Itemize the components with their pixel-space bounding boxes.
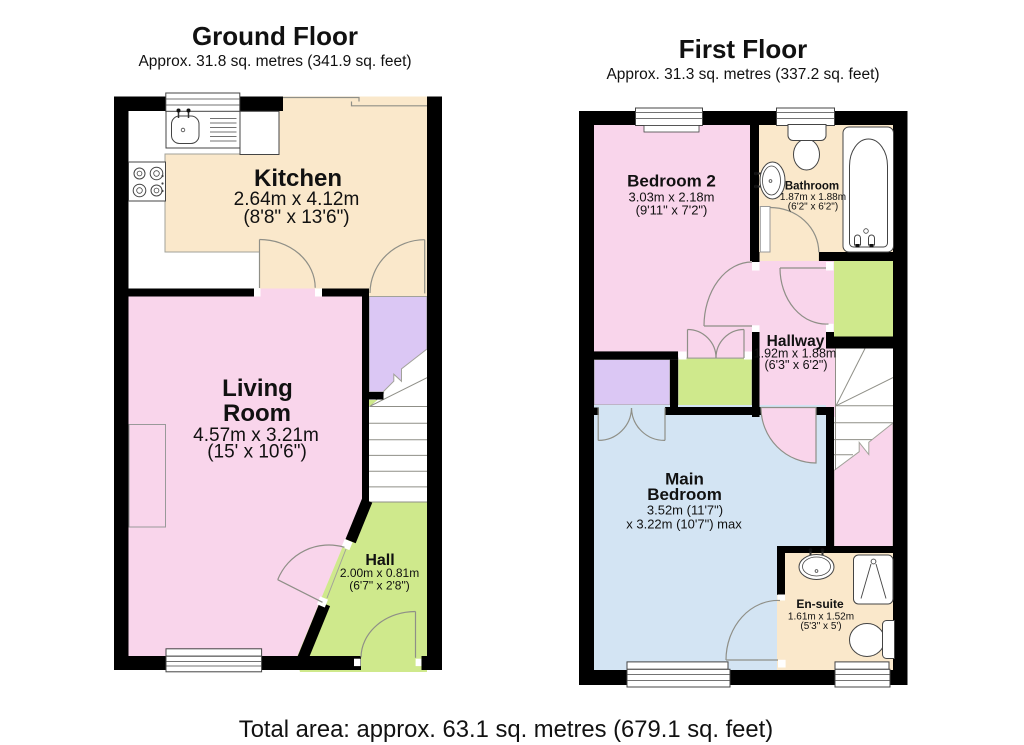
svg-text:(6'2" x 6'2"): (6'2" x 6'2") [788,202,838,213]
svg-text:Room: Room [223,400,291,427]
svg-text:Living: Living [222,375,293,402]
svg-text:Approx. 31.3 sq. metres (337.2: Approx. 31.3 sq. metres (337.2 sq. feet) [606,66,879,83]
svg-text:(9'11" x 7'2"): (9'11" x 7'2") [636,203,708,218]
svg-text:Bedroom 2: Bedroom 2 [627,172,716,191]
svg-text:(6'7" x 2'8"): (6'7" x 2'8") [349,579,409,593]
svg-text:En-suite: En-suite [796,597,844,611]
svg-text:Approx. 31.8 sq. metres (341.9: Approx. 31.8 sq. metres (341.9 sq. feet) [138,53,411,70]
svg-text:Total area: approx. 63.1 sq. m: Total area: approx. 63.1 sq. metres (679… [239,716,773,743]
svg-text:(6'3" x 6'2"): (6'3" x 6'2") [765,358,828,372]
svg-text:Kitchen: Kitchen [254,165,342,192]
svg-text:First Floor: First Floor [679,34,808,64]
svg-text:Bedroom: Bedroom [647,485,722,504]
svg-text:(5'3" x 5'): (5'3" x 5') [800,621,841,632]
svg-text:Ground Floor: Ground Floor [192,21,358,51]
svg-text:Bathroom: Bathroom [785,181,839,193]
svg-text:x 3.22m (10'7") max: x 3.22m (10'7") max [626,517,742,532]
svg-text:(15' x 10'6"): (15' x 10'6") [207,442,307,463]
svg-text:3.52m (11'7"): 3.52m (11'7") [647,503,723,518]
svg-text:(8'8" x 13'6"): (8'8" x 13'6") [243,207,349,228]
